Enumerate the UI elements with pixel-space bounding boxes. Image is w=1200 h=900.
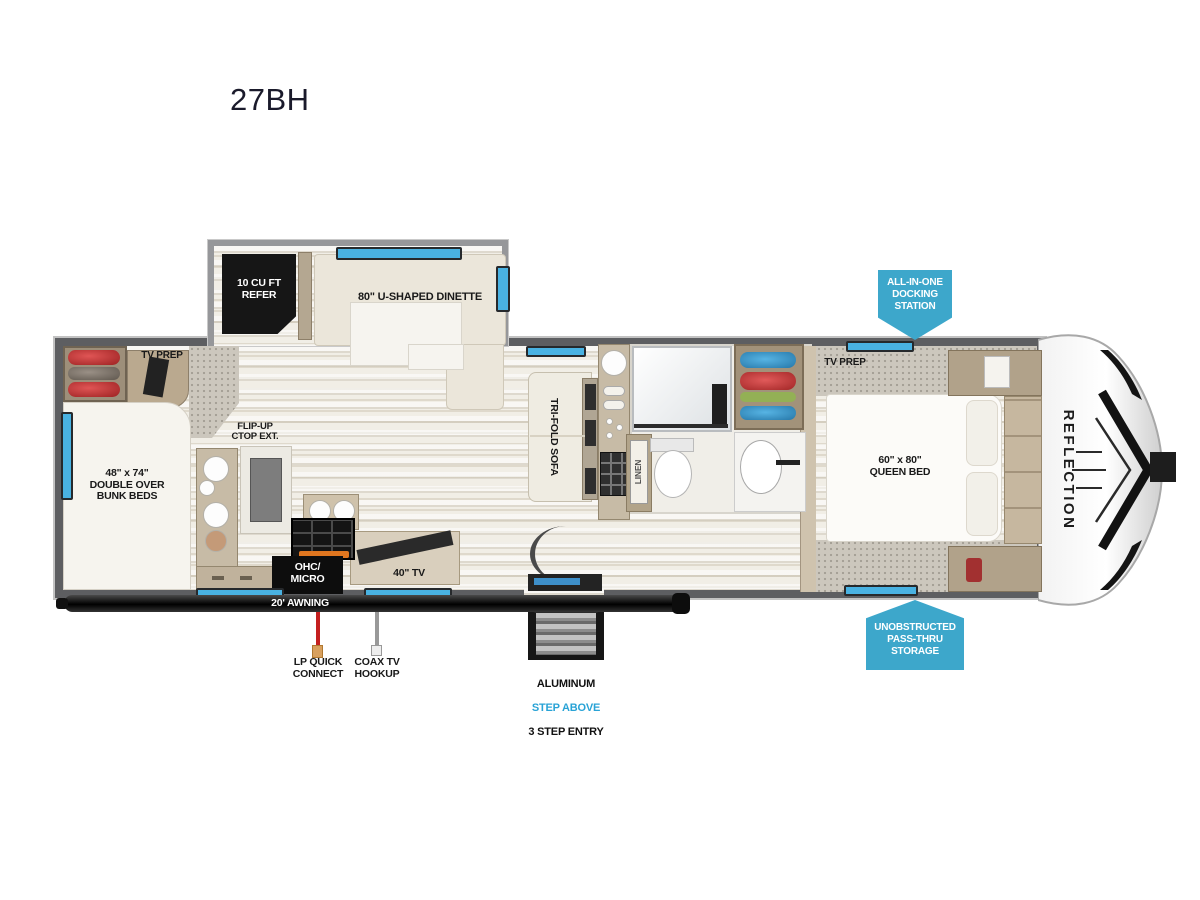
wardrobe-clothes-red-2 xyxy=(68,382,120,397)
floorplan: 10 CU FT REFER 80" U-SHAPED DINETTE TV P… xyxy=(0,0,1200,900)
island-tray-2 xyxy=(603,400,625,410)
island-dot-1 xyxy=(606,418,613,425)
dinette-label: 80" U-SHAPED DINETTE xyxy=(338,291,502,303)
awning-bar-left-cap xyxy=(56,598,68,609)
tv-prep-left-label: TV PREP xyxy=(134,350,190,361)
awning-bar-right-cap xyxy=(672,593,690,614)
entry-line-aluminum: ALUMINUM xyxy=(504,678,628,690)
sink-bowl-2 xyxy=(199,480,215,496)
island-grate xyxy=(600,452,628,496)
drawer-handle-1 xyxy=(212,576,224,580)
kitchen-bowl-tan xyxy=(205,530,227,552)
bed-pillow-1 xyxy=(966,400,998,466)
coax-hookup-label: COAX TV HOOKUP xyxy=(345,657,409,680)
hitch-pin-box xyxy=(1150,452,1176,482)
refer-label: 10 CU FT REFER xyxy=(224,278,294,301)
shower-threshold xyxy=(634,424,728,428)
island-dot-3 xyxy=(606,432,613,439)
console-block-2 xyxy=(585,420,596,446)
entry-table-runner xyxy=(534,578,580,585)
sink-bowl-3 xyxy=(203,502,229,528)
console-block-3 xyxy=(585,468,596,494)
console-block-1 xyxy=(585,384,596,410)
entry-line-step-above: STEP ABOVE xyxy=(504,702,628,714)
sofa-label: TRI-FOLD SOFA xyxy=(546,374,560,500)
tv-prep-bedroom-label: TV PREP xyxy=(817,357,873,368)
sofa-window xyxy=(526,346,586,357)
docking-station-badge: ALL-IN-ONE DOCKING STATION xyxy=(878,270,952,340)
slide-cabinet-strip xyxy=(298,252,312,340)
island-tray-1 xyxy=(603,386,625,396)
sink-bowl-1 xyxy=(203,456,229,482)
clothes-red xyxy=(740,372,796,390)
wardrobe-clothes-red-1 xyxy=(68,350,120,365)
clothes-green xyxy=(740,392,796,402)
flip-up-counter-top xyxy=(250,458,282,522)
vanity-faucet xyxy=(776,460,800,465)
bedroom-window-top xyxy=(846,341,914,352)
dinette-window xyxy=(336,247,462,260)
slide-side-window xyxy=(496,266,510,312)
linen-label: LINEN xyxy=(633,447,645,497)
drawer-handle-2 xyxy=(240,576,252,580)
dinette-table-extension xyxy=(408,344,464,370)
clothes-blue-2 xyxy=(740,406,796,420)
vanity-sink xyxy=(740,440,782,494)
coax-tip xyxy=(371,645,382,656)
brand-label: REFLECTION xyxy=(1059,370,1077,570)
queen-bed-label: 60" x 80" QUEEN BED xyxy=(840,455,960,478)
lp-line xyxy=(316,612,320,648)
wardrobe-flag-item xyxy=(984,356,1010,388)
pass-thru-storage-badge: UNOBSTRUCTED PASS-THRU STORAGE xyxy=(866,600,964,670)
bedroom-window-bottom xyxy=(844,585,918,596)
tv-40-label: 40" TV xyxy=(379,568,439,580)
bedroom-dresser-bottom xyxy=(948,546,1042,592)
entry-line-3-step: 3 STEP ENTRY xyxy=(504,726,628,738)
dresser-red-item xyxy=(966,558,982,582)
entry-steps xyxy=(528,610,604,660)
sofa-cushion-line xyxy=(530,435,590,437)
ohc-micro-label: OHC/ MICRO xyxy=(274,562,341,585)
flip-up-label: FLIP-UP CTOP EXT. xyxy=(225,422,285,443)
coax-line xyxy=(375,612,379,648)
clothes-blue-1 xyxy=(740,352,796,368)
bed-pillow-2 xyxy=(966,472,998,536)
awning-bar xyxy=(64,595,688,612)
toilet-bowl xyxy=(654,450,692,498)
floorplan-page: { "title": "27BH", "colors": { "badge_bl… xyxy=(0,0,1200,900)
bunks-label: 48" x 74" DOUBLE OVER BUNK BEDS xyxy=(67,468,187,503)
island-dot-2 xyxy=(616,424,623,431)
front-closet xyxy=(1004,396,1042,544)
shower-fixture xyxy=(712,384,727,428)
awning-label: 20' AWNING xyxy=(248,598,352,610)
entry-steps-label: ALUMINUM STEP ABOVE 3 STEP ENTRY xyxy=(504,666,628,751)
front-cap xyxy=(1038,330,1168,610)
island-sink xyxy=(601,350,627,376)
lp-quick-connect-label: LP QUICK CONNECT xyxy=(286,657,350,680)
wardrobe-clothes-gray xyxy=(68,367,120,380)
